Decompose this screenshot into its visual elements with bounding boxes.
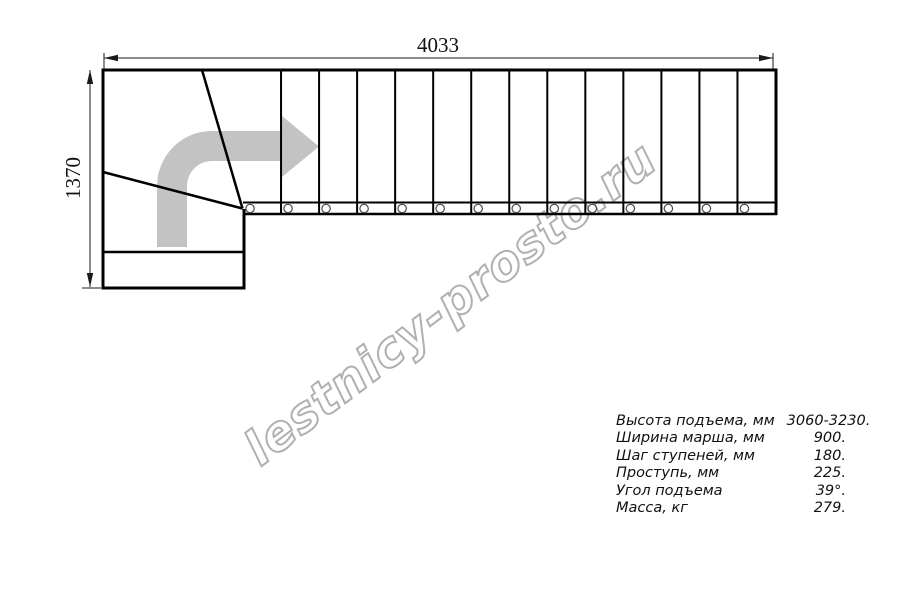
baluster-circle xyxy=(474,204,482,212)
spec-label: Шаг ступеней, мм xyxy=(616,448,755,465)
spec-value: 225. xyxy=(814,465,846,482)
baluster-circle xyxy=(246,204,254,212)
baluster-circle xyxy=(284,204,292,212)
baluster-circle xyxy=(740,204,748,212)
stair-outline xyxy=(102,69,778,290)
spec-label: Угол подъема xyxy=(616,483,723,500)
arrowhead-left-icon xyxy=(104,55,118,61)
arrowhead-down-icon xyxy=(87,273,93,287)
arrowhead-right-icon xyxy=(759,55,773,61)
watermark-text: lestnicy-prosto.ru xyxy=(234,131,667,477)
baluster-circle xyxy=(588,204,596,212)
spec-value: 279. xyxy=(814,500,846,517)
spec-row-width: Ширина марша, мм 900. xyxy=(616,430,846,447)
baluster-circle xyxy=(322,204,330,212)
baluster-circle xyxy=(398,204,406,212)
straight-flight-steps xyxy=(281,70,737,214)
spec-row-height: Высота подъема, мм 3060-3230. xyxy=(616,413,846,430)
spec-value: 3060-3230. xyxy=(787,413,871,430)
baluster-circle xyxy=(360,204,368,212)
spec-label: Высота подъема, мм xyxy=(616,413,775,430)
baluster-circle xyxy=(512,204,520,212)
baluster-circle xyxy=(550,204,558,212)
spec-label: Ширина марша, мм xyxy=(616,430,765,447)
direction-arrow-icon xyxy=(157,116,319,247)
spec-row-mass: Масса, кг 279. xyxy=(616,500,846,517)
baluster-circle xyxy=(626,204,634,212)
spec-label: Проступь, мм xyxy=(616,465,719,482)
specifications-table: Высота подъема, мм 3060-3230. Ширина мар… xyxy=(616,413,846,517)
baluster-circles xyxy=(246,204,749,212)
baluster-circle xyxy=(702,204,710,212)
spec-label: Масса, кг xyxy=(616,500,688,517)
spec-row-angle: Угол подъема 39°. xyxy=(616,483,846,500)
stair-plan-page: lestnicy-prosto.ru 4033 xyxy=(0,0,900,600)
spec-row-step: Шаг ступеней, мм 180. xyxy=(616,448,846,465)
baluster-circle xyxy=(664,204,672,212)
dimension-width-label: 4033 xyxy=(417,33,459,57)
spec-row-tread: Проступь, мм 225. xyxy=(616,465,846,482)
spec-value: 180. xyxy=(814,448,846,465)
dimension-height-label: 1370 xyxy=(61,157,85,199)
baluster-circle xyxy=(436,204,444,212)
arrowhead-up-icon xyxy=(87,70,93,84)
spec-value: 39°. xyxy=(816,483,846,500)
spec-value: 900. xyxy=(814,430,846,447)
